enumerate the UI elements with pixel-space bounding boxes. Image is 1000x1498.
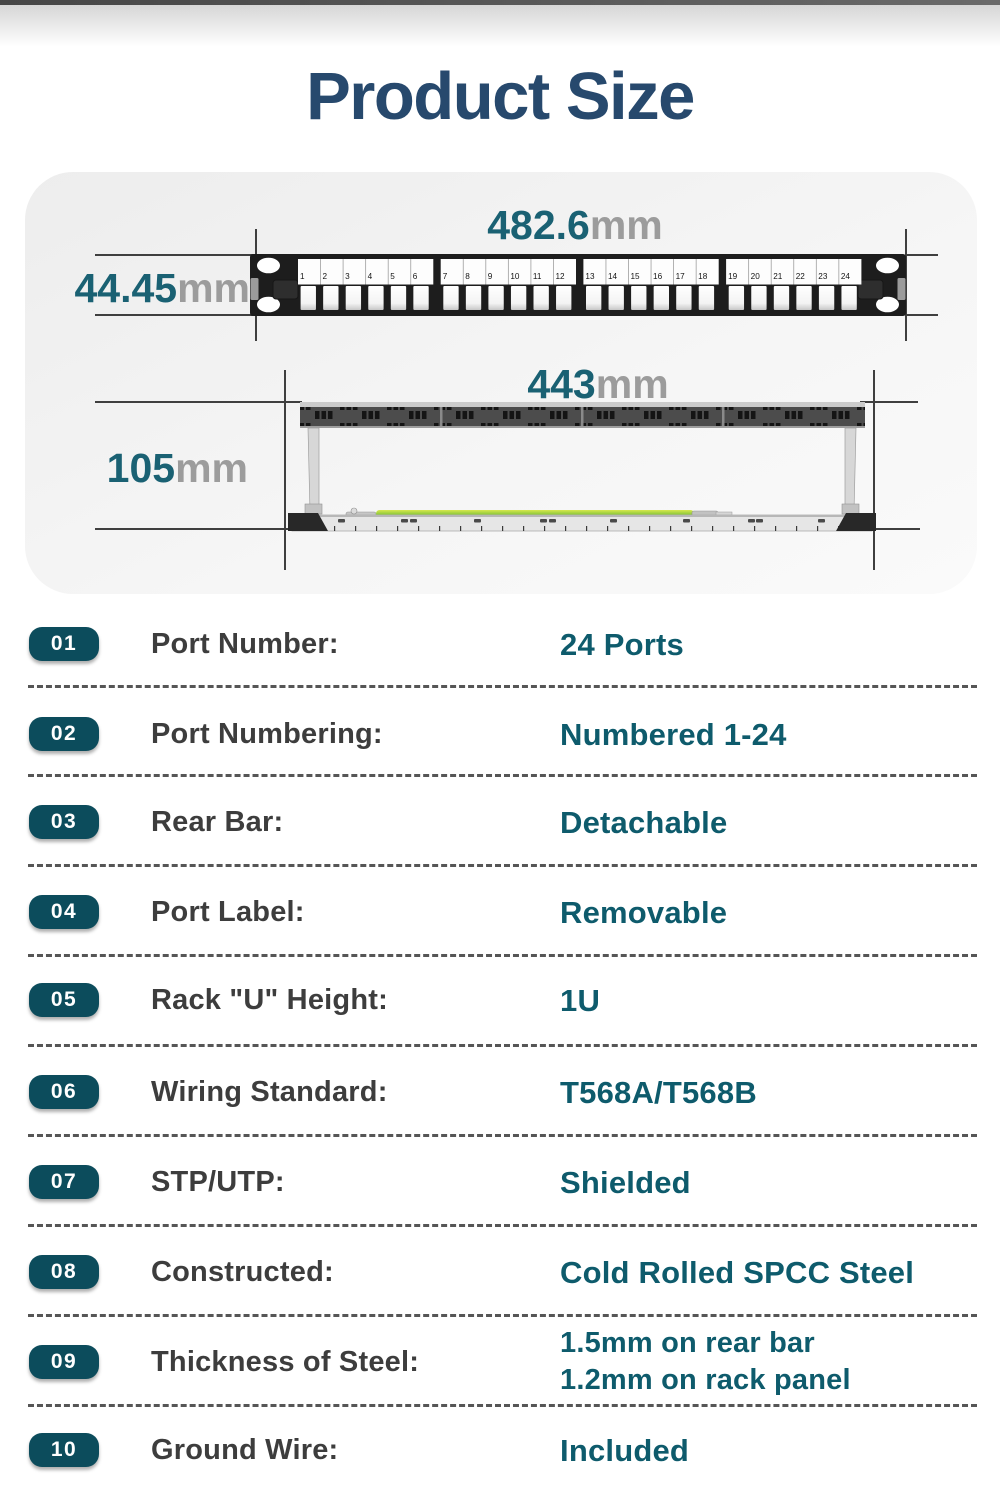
keystone-slot — [413, 286, 428, 310]
spec-value: Numbered 1-24 — [560, 689, 787, 779]
port-number-label: 22 — [796, 272, 806, 281]
row-divider — [28, 685, 977, 688]
keystone-slot — [699, 286, 714, 310]
front-width-unit: mm — [590, 202, 663, 248]
spec-value: 24 Ports — [560, 599, 684, 689]
dimension-line — [905, 314, 938, 316]
page-title: Product Size — [0, 60, 1000, 134]
keystone-slot — [729, 286, 744, 310]
row-divider — [28, 1044, 977, 1047]
spec-row: 10Ground Wire:Included — [0, 1405, 1000, 1495]
spec-number-badge: 01 — [29, 627, 99, 661]
keystone-slot — [841, 286, 856, 310]
keystone-slot — [586, 286, 601, 310]
port-number-label: 24 — [841, 272, 851, 281]
keystone-slot — [301, 286, 316, 310]
spec-value: Included — [560, 1405, 689, 1495]
keystone-slot — [751, 286, 766, 310]
port-number-label: 20 — [751, 272, 761, 281]
spec-value: 1U — [560, 955, 600, 1045]
spec-number-badge: 09 — [29, 1345, 99, 1379]
row-divider — [28, 774, 977, 777]
front-width-value: 482.6 — [487, 202, 590, 248]
patch-panel-front-image: 123456789101112131415161718192021222324 — [250, 252, 906, 318]
port-number-label: 18 — [698, 272, 708, 281]
keystone-slot — [323, 286, 338, 310]
dimension-line — [95, 401, 302, 403]
port-number-label: 19 — [728, 272, 738, 281]
keystone-slot — [466, 286, 481, 310]
rear-height-unit: mm — [175, 445, 248, 491]
port-number-label: 1 — [300, 272, 305, 281]
spec-label: Wiring Standard: — [151, 1047, 388, 1137]
spec-number-badge: 06 — [29, 1075, 99, 1109]
spec-label: Thickness of Steel: — [151, 1317, 419, 1407]
spec-row: 06Wiring Standard:T568A/T568B — [0, 1047, 1000, 1137]
row-divider — [28, 864, 977, 867]
spec-value: 1.5mm on rear bar1.2mm on rack panel — [560, 1317, 851, 1407]
keystone-slot — [556, 286, 571, 310]
port-number-label: 9 — [488, 272, 493, 281]
spec-value: Cold Rolled SPCC Steel — [560, 1227, 914, 1317]
keystone-slot — [676, 286, 691, 310]
spec-label: Constructed: — [151, 1227, 334, 1317]
spec-value-line: Removable — [560, 894, 727, 931]
top-shadow-fade — [0, 5, 1000, 47]
spec-row: 07STP/UTP:Shielded — [0, 1137, 1000, 1227]
port-number-label: 4 — [368, 272, 373, 281]
spec-row: 05Rack "U" Height:1U — [0, 955, 1000, 1045]
spec-number-badge: 07 — [29, 1165, 99, 1199]
spec-label: Ground Wire: — [151, 1405, 338, 1495]
spec-number-badge: 02 — [29, 717, 99, 751]
row-divider — [28, 954, 977, 957]
front-width-dimension: 482.6mm — [460, 203, 690, 247]
keystone-slot — [774, 286, 789, 310]
port-number-label: 23 — [818, 272, 828, 281]
dimension-line — [905, 254, 938, 256]
spec-row: 03Rear Bar:Detachable — [0, 777, 1000, 867]
keystone-slot — [654, 286, 669, 310]
port-number-label: 7 — [443, 272, 448, 281]
keystone-slot — [391, 286, 406, 310]
port-number-label: 5 — [390, 272, 395, 281]
front-height-value: 44.45 — [74, 265, 177, 311]
spec-label: Port Number: — [151, 599, 339, 689]
keystone-slot — [488, 286, 503, 310]
spec-value-line: 1.2mm on rack panel — [560, 1362, 851, 1399]
spec-value-line: 24 Ports — [560, 626, 684, 663]
spec-number-badge: 05 — [29, 983, 99, 1017]
keystone-slot — [346, 286, 361, 310]
dimension-line — [876, 528, 920, 530]
keystone-slot — [511, 286, 526, 310]
spec-value: Shielded — [560, 1137, 691, 1227]
front-height-unit: mm — [177, 265, 250, 311]
spec-number-badge: 04 — [29, 895, 99, 929]
dimension-line — [95, 254, 256, 256]
port-number-label: 6 — [413, 272, 418, 281]
port-number-label: 17 — [676, 272, 686, 281]
dimension-line — [95, 314, 256, 316]
spec-row: 01Port Number:24 Ports — [0, 599, 1000, 689]
row-divider — [28, 1404, 977, 1407]
spec-label: Rear Bar: — [151, 777, 283, 867]
keystone-slot — [796, 286, 811, 310]
spec-value: Removable — [560, 867, 727, 957]
port-number-label: 16 — [653, 272, 663, 281]
port-number-label: 12 — [555, 272, 565, 281]
port-number-label: 21 — [773, 272, 783, 281]
spec-label: Port Numbering: — [151, 689, 383, 779]
keystone-slot — [534, 286, 549, 310]
keystone-slot — [443, 286, 458, 310]
spec-value-line: Cold Rolled SPCC Steel — [560, 1254, 914, 1291]
spec-label: Port Label: — [151, 867, 305, 957]
spec-number-badge: 10 — [29, 1433, 99, 1467]
port-number-label: 10 — [510, 272, 520, 281]
spec-row: 09Thickness of Steel:1.5mm on rear bar1.… — [0, 1317, 1000, 1407]
patch-panel-rear-image — [288, 400, 876, 533]
spec-value-line: Shielded — [560, 1164, 691, 1201]
product-size-page: Product Size 482.6mm 44.45mm 443mm 105mm — [0, 0, 1000, 1498]
row-divider — [28, 1224, 977, 1227]
spec-row: 02Port Numbering:Numbered 1-24 — [0, 689, 1000, 779]
spec-number-badge: 03 — [29, 805, 99, 839]
spec-value-line: 1.5mm on rear bar — [560, 1325, 851, 1362]
row-divider — [28, 1134, 977, 1137]
port-number-label: 3 — [345, 272, 350, 281]
port-number-label: 15 — [631, 272, 641, 281]
spec-value: T568A/T568B — [560, 1047, 757, 1137]
port-number-label: 13 — [585, 272, 595, 281]
row-divider — [28, 1314, 977, 1317]
spec-value: Detachable — [560, 777, 727, 867]
spec-label: Rack "U" Height: — [151, 955, 388, 1045]
dimension-line — [284, 370, 286, 570]
port-number-label: 2 — [323, 272, 328, 281]
port-number-label: 14 — [608, 272, 618, 281]
port-number-label: 8 — [465, 272, 470, 281]
spec-value-line: Included — [560, 1432, 689, 1469]
keystone-slot — [631, 286, 646, 310]
spec-value-line: T568A/T568B — [560, 1074, 757, 1111]
spec-value-line: Numbered 1-24 — [560, 716, 787, 753]
rear-height-value: 105 — [107, 445, 175, 491]
dimension-line — [95, 528, 288, 530]
spec-value-line: Detachable — [560, 804, 727, 841]
spec-row: 04Port Label:Removable — [0, 867, 1000, 957]
port-number-label: 11 — [533, 272, 542, 281]
keystone-slot — [368, 286, 383, 310]
keystone-slot — [819, 286, 834, 310]
spec-row: 08Constructed:Cold Rolled SPCC Steel — [0, 1227, 1000, 1317]
rear-height-dimension: 105mm — [58, 446, 248, 490]
spec-value-line: 1U — [560, 982, 600, 1019]
spec-number-badge: 08 — [29, 1255, 99, 1289]
keystone-slot — [609, 286, 624, 310]
spec-label: STP/UTP: — [151, 1137, 285, 1227]
front-height-dimension: 44.45mm — [58, 266, 250, 310]
